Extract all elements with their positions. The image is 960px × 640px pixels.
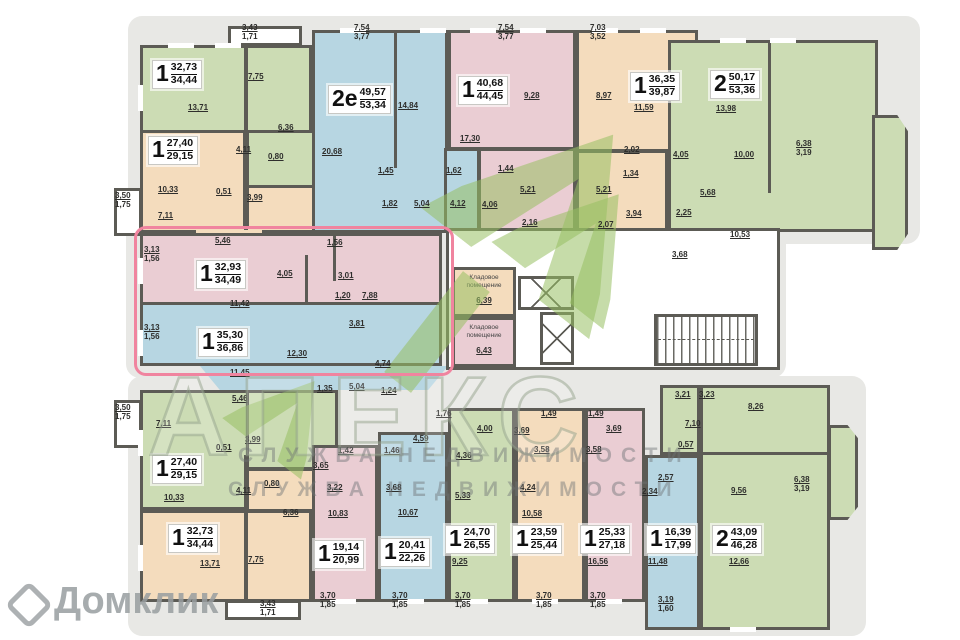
interior-wall — [702, 452, 828, 455]
unit-label: 136,3539,87 — [630, 72, 680, 101]
unit-area-total: 34,44 — [187, 539, 213, 551]
dim-label: 8,26 — [748, 402, 764, 411]
window — [138, 85, 143, 111]
unit-area: 43,09 — [731, 527, 757, 540]
unit-area-total: 22,26 — [399, 553, 425, 565]
unit-label: 250,1753,36 — [710, 70, 760, 99]
unit-rooms: 1 — [634, 75, 647, 97]
dim-label: 10,83 — [328, 509, 348, 518]
dim-label: 1,45 — [378, 166, 394, 175]
unit-area-total: 17,99 — [665, 540, 691, 552]
unit-label: 125,3327,18 — [580, 525, 630, 554]
dim-pair: 3,701,85 — [590, 592, 606, 610]
window — [215, 43, 241, 48]
dim-pair: 7,543,77 — [498, 24, 514, 42]
dim-under: 1,71 — [242, 33, 258, 42]
window — [770, 38, 796, 43]
dim-label: 1,82 — [382, 199, 398, 208]
dim-label: 3,68 — [672, 250, 688, 259]
selected-unit-highlight-box[interactable] — [134, 226, 454, 376]
dim-label: 10,58 — [522, 509, 542, 518]
dim-label: 1,62 — [446, 166, 462, 175]
staircase-midline — [658, 339, 754, 340]
dim-pair: 3,431,71 — [242, 24, 258, 42]
unit-rooms: 1 — [384, 541, 397, 563]
dim-label: 17,30 — [460, 134, 480, 143]
dim-label: 13,71 — [200, 559, 220, 568]
dim-label: 8,97 — [596, 91, 612, 100]
unit-rooms: 1 — [172, 527, 185, 549]
unit-label: 140,6844,45 — [458, 76, 508, 105]
window — [520, 28, 546, 33]
dim-pair: 7,033,52 — [590, 24, 606, 42]
bay-window — [828, 425, 858, 520]
dim-label: 6,36 — [283, 508, 299, 517]
unit-area-total: 44,45 — [477, 91, 503, 103]
dim-label: 9,28 — [524, 91, 540, 100]
unit-rooms: 1 — [516, 528, 529, 550]
unit-label: 132,7334,44 — [168, 524, 218, 553]
dim-label: 11,59 — [634, 103, 654, 112]
dim-under: 3,77 — [354, 33, 370, 42]
unit-rooms: 2 — [716, 528, 729, 550]
dim-label: 6,36 — [278, 123, 294, 132]
unit-rooms: 1 — [449, 528, 462, 550]
unit-rooms: 1 — [584, 528, 597, 550]
dim-pair: 6,383,19 — [794, 476, 810, 494]
dim-label: 20,68 — [322, 147, 342, 156]
unit-area-total: 25,44 — [531, 540, 557, 552]
dim-label: 11,48 — [648, 557, 668, 566]
unit-area: 49,57 — [360, 87, 386, 100]
watermark-domclick: Домклик — [54, 580, 218, 623]
dim-under: 3,19 — [796, 149, 812, 158]
unit-area: 36,35 — [649, 74, 675, 87]
unit-area: 20,41 — [399, 540, 425, 553]
dim-under: 1,75 — [115, 201, 131, 210]
dim-under: 1,85 — [392, 601, 408, 610]
dim-under: 1,71 — [260, 609, 276, 618]
dim-label: 16,56 — [588, 557, 608, 566]
unit-area-total: 34,44 — [171, 75, 197, 87]
dim-under: 1,85 — [455, 601, 471, 610]
unit-area: 40,68 — [477, 78, 503, 91]
window — [730, 627, 756, 632]
watermark-subtitle-1: СЛУЖБА НЕДВИЖИМОСТИ — [238, 444, 691, 468]
dim-pair: 3,501,75 — [115, 404, 131, 422]
unit-area: 32,73 — [187, 526, 213, 539]
dim-label: 5,68 — [700, 188, 716, 197]
dim-label: 12,66 — [729, 557, 749, 566]
unit-rooms: 2 — [714, 73, 727, 95]
unit-label: 127,4029,15 — [148, 136, 198, 165]
dim-label: 10,53 — [730, 230, 750, 239]
watermark-subtitle-2: СЛУЖБА НЕДВИЖИМОСТИ — [228, 478, 681, 502]
dim-under: 3,19 — [794, 485, 810, 494]
dim-pair: 3,701,85 — [320, 592, 336, 610]
dim-pair: 3,701,85 — [455, 592, 471, 610]
interior-wall — [394, 33, 397, 168]
dim-label: 10,00 — [734, 150, 754, 159]
window — [138, 430, 143, 456]
window — [720, 38, 746, 43]
unit-area: 23,59 — [531, 527, 557, 540]
interior-wall — [768, 43, 771, 193]
unit-area: 27,40 — [167, 138, 193, 151]
dim-label: 5,04 — [414, 199, 430, 208]
dim-label: 0,80 — [268, 152, 284, 161]
dim-label: 2,25 — [676, 208, 692, 217]
unit-area-total: 39,87 — [649, 87, 675, 99]
unit-label: 2е49,5753,34 — [328, 85, 391, 114]
unit-rooms: 1 — [318, 543, 331, 565]
dim-label: 3,21 — [675, 390, 691, 399]
dim-pair: 6,383,19 — [796, 140, 812, 158]
unit-label: 123,5925,44 — [512, 525, 562, 554]
dim-label: 4,11 — [236, 145, 251, 154]
dim-label: 7,75 — [248, 555, 264, 564]
dim-label: 5,21 — [596, 185, 612, 194]
unit-area-total: 29,15 — [167, 151, 193, 163]
unit-rooms: 1 — [156, 63, 169, 85]
dim-label: 14,84 — [398, 101, 418, 110]
unit-rooms: 1 — [650, 528, 663, 550]
unit-area: 16,39 — [665, 527, 691, 540]
dim-label: 10,33 — [164, 493, 184, 502]
window — [470, 28, 496, 33]
dim-label: 3,99 — [247, 193, 263, 202]
dim-label: 7,10 — [685, 419, 701, 428]
domclick-logo-icon — [5, 581, 53, 629]
bay-window — [872, 115, 908, 250]
dim-label: 1,34 — [623, 169, 639, 178]
unit-area: 24,70 — [464, 527, 490, 540]
unit-green-32-73 — [140, 45, 312, 133]
window — [138, 545, 143, 571]
dim-pair: 3,701,85 — [536, 592, 552, 610]
unit-label: 124,7026,55 — [445, 525, 495, 554]
storage-label: Кладовое помещение — [455, 324, 513, 340]
unit-rooms: 2е — [332, 88, 358, 110]
dim-pair: 7,543,77 — [354, 24, 370, 42]
dim-label: 5,21 — [520, 185, 536, 194]
window — [640, 28, 666, 33]
dim-label: 10,33 — [158, 185, 178, 194]
dim-under: 3,52 — [590, 33, 606, 42]
unit-area-total: 26,55 — [464, 540, 490, 552]
dim-label: 13,71 — [188, 103, 208, 112]
dim-label: 2,16 — [522, 218, 538, 227]
unit-rooms: 1 — [462, 79, 475, 101]
dim-pair: 3,501,75 — [115, 192, 131, 210]
dim-pair: 3,431,71 — [260, 600, 276, 618]
dim-label: 9,56 — [731, 486, 747, 495]
dim-label: 2,02 — [624, 145, 640, 154]
dim-under: 1,85 — [536, 601, 552, 610]
dim-label: 3,23 — [699, 390, 715, 399]
dim-under: 1,75 — [115, 413, 131, 422]
window — [420, 28, 446, 33]
unit-label: 120,4122,26 — [380, 538, 430, 567]
floor-plan: Кладовое помещение 6,39 Кладовое помещен… — [0, 0, 960, 640]
dim-pair: 3,701,85 — [392, 592, 408, 610]
unit-label: 116,3917,99 — [646, 525, 696, 554]
dim-label: 7,75 — [248, 72, 264, 81]
staircase — [654, 314, 758, 366]
window — [168, 43, 194, 48]
unit-pink-25-33 — [585, 408, 645, 602]
unit-area-total: 20,99 — [333, 555, 359, 567]
dim-under: 1,85 — [590, 601, 606, 610]
unit-area: 19,14 — [333, 542, 359, 555]
unit-area-total: 53,36 — [729, 85, 755, 97]
dim-under: 1,60 — [658, 605, 674, 614]
unit-green-50-17 — [668, 40, 878, 232]
dim-label: 13,98 — [716, 104, 736, 113]
dim-label: 10,67 — [398, 508, 418, 517]
dim-label: 7,11 — [158, 211, 173, 220]
dim-label: 4,12 — [450, 199, 466, 208]
dim-under: 3,77 — [498, 33, 514, 42]
unit-label: 119,1420,99 — [314, 540, 364, 569]
dim-label: 4,05 — [673, 150, 689, 159]
dim-pair: 3,191,60 — [658, 596, 674, 614]
unit-green-43-09 — [700, 385, 830, 630]
dim-label: 1,44 — [498, 164, 514, 173]
unit-area: 25,33 — [599, 527, 625, 540]
dim-label: 4,06 — [482, 200, 498, 209]
unit-area-total: 53,34 — [360, 100, 386, 112]
unit-area: 32,73 — [171, 62, 197, 75]
unit-rooms: 1 — [152, 139, 165, 161]
unit-area-total: 46,28 — [731, 540, 757, 552]
dim-label: 3,94 — [626, 209, 642, 218]
unit-area-total: 27,18 — [599, 540, 625, 552]
unit-label: 132,7334,44 — [152, 60, 202, 89]
unit-label: 243,0946,28 — [712, 525, 762, 554]
dim-label: 0,51 — [216, 187, 232, 196]
unit-area: 50,17 — [729, 72, 755, 85]
dim-label: 2,07 — [598, 220, 614, 229]
dim-under: 1,85 — [320, 601, 336, 610]
dim-label: 3,69 — [606, 424, 622, 433]
dim-label: 9,25 — [452, 557, 468, 566]
